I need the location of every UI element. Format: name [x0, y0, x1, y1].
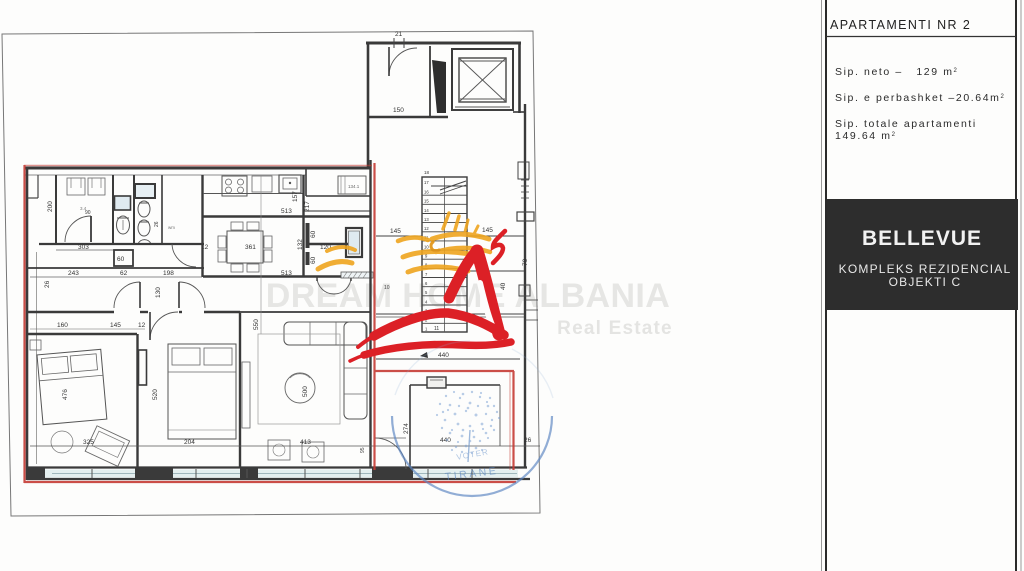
svg-text:204: 204 — [184, 439, 195, 446]
svg-text:550: 550 — [253, 319, 260, 330]
svg-text:132: 132 — [297, 239, 304, 250]
svg-text:361: 361 — [245, 244, 256, 251]
svg-text:62: 62 — [120, 270, 128, 277]
svg-text:14: 14 — [424, 208, 429, 213]
svg-text:413: 413 — [300, 439, 311, 446]
svg-text:Real Estate: Real Estate — [557, 318, 673, 339]
svg-text:243: 243 — [68, 270, 79, 277]
svg-text:520: 520 — [152, 389, 159, 400]
svg-text:10: 10 — [384, 285, 390, 291]
svg-text:150: 150 — [393, 107, 404, 114]
svg-text:BELLEVUE: BELLEVUE — [862, 227, 982, 250]
svg-text:95: 95 — [360, 447, 366, 453]
svg-text:160: 160 — [57, 322, 68, 329]
svg-text:303: 303 — [78, 244, 89, 251]
svg-text:440: 440 — [438, 352, 449, 359]
svg-text:500: 500 — [302, 386, 309, 397]
svg-text:145: 145 — [390, 228, 401, 235]
svg-text:70: 70 — [522, 258, 529, 266]
svg-text:Sip. e perbashket –20.64m2: Sip. e perbashket –20.64m2 — [835, 92, 1005, 104]
svg-text:15: 15 — [424, 199, 429, 204]
svg-text:11: 11 — [434, 326, 439, 332]
svg-text:274: 274 — [403, 423, 410, 434]
svg-text:21: 21 — [395, 31, 403, 38]
svg-text:149.64 m2: 149.64 m2 — [835, 130, 897, 142]
svg-text:40: 40 — [500, 282, 507, 290]
svg-text:DREAM HOME ALBANIA: DREAM HOME ALBANIA — [266, 277, 670, 315]
svg-text:17: 17 — [424, 180, 429, 185]
svg-text:wm: wm — [168, 225, 175, 230]
svg-text:12: 12 — [138, 322, 146, 329]
svg-text:60: 60 — [310, 256, 317, 264]
svg-text:476: 476 — [62, 389, 69, 400]
svg-text:145: 145 — [110, 322, 121, 329]
svg-text:200: 200 — [47, 201, 54, 212]
svg-text:90: 90 — [85, 210, 91, 216]
svg-text:60: 60 — [117, 256, 125, 263]
svg-text:Sip. totale apartamenti: Sip. totale apartamenti — [835, 118, 977, 130]
svg-text:Sip. neto – 129 m2: Sip. neto – 129 m2 — [835, 66, 958, 78]
svg-text:145: 145 — [482, 227, 493, 234]
svg-text:60: 60 — [310, 230, 317, 238]
svg-text:12: 12 — [424, 226, 429, 231]
svg-text:13: 13 — [424, 217, 429, 222]
svg-text:16: 16 — [424, 190, 429, 195]
svg-text:OBJEKTI C: OBJEKTI C — [889, 275, 962, 289]
svg-text:APARTAMENTI NR 2: APARTAMENTI NR 2 — [830, 18, 971, 32]
svg-text:10: 10 — [424, 244, 429, 249]
svg-text:KOMPLEKS REZIDENCIAL: KOMPLEKS REZIDENCIAL — [839, 262, 1012, 276]
svg-text:440: 440 — [440, 437, 451, 444]
svg-text:12: 12 — [201, 244, 209, 251]
svg-text:513: 513 — [281, 208, 292, 215]
svg-text:134.1: 134.1 — [348, 184, 360, 189]
svg-text:18: 18 — [424, 170, 430, 175]
svg-text:217: 217 — [304, 201, 311, 212]
svg-text:26: 26 — [524, 437, 532, 444]
svg-text:26: 26 — [44, 280, 51, 288]
svg-text:130: 130 — [155, 287, 162, 298]
svg-text:26: 26 — [154, 221, 160, 227]
svg-text:198: 198 — [163, 270, 174, 277]
svg-text:157: 157 — [292, 191, 299, 202]
svg-text:325: 325 — [83, 439, 94, 446]
